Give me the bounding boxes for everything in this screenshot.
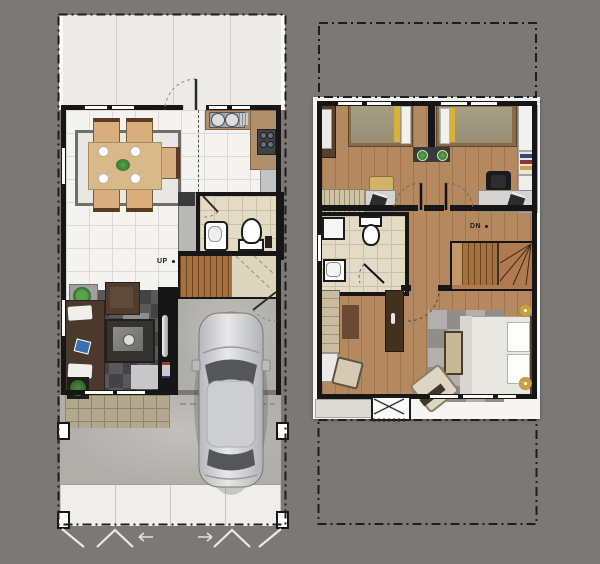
ac-ledge xyxy=(315,399,373,418)
bed-bench xyxy=(444,331,463,375)
up-label: UP xyxy=(157,258,168,265)
sink-basin xyxy=(211,113,225,127)
window xyxy=(471,102,497,105)
remote xyxy=(391,313,395,324)
table-plate xyxy=(98,146,109,157)
bath-fitting xyxy=(265,236,272,248)
table-centerpiece-plant xyxy=(116,159,130,171)
terrace-edge-right xyxy=(281,15,285,110)
gate-swing-marks xyxy=(62,529,281,547)
master-wall-stub xyxy=(438,285,450,291)
bedroom-divider-wall xyxy=(428,101,435,147)
understair-storage xyxy=(232,254,278,299)
bedside-lamp xyxy=(519,377,532,390)
dining-chair xyxy=(93,118,120,145)
table-bowl xyxy=(123,334,135,346)
bed-pillow xyxy=(440,108,450,144)
window xyxy=(117,391,145,394)
window xyxy=(463,395,493,398)
shower xyxy=(322,217,345,240)
basin-bowl xyxy=(326,262,341,277)
window xyxy=(62,148,65,184)
window xyxy=(232,106,250,109)
terrace-edge-left xyxy=(59,15,63,110)
gate-post xyxy=(276,422,289,440)
nightstand-plant xyxy=(437,150,448,161)
tv-screen xyxy=(162,315,168,357)
stair-landing xyxy=(452,243,462,285)
table-plate xyxy=(130,146,141,157)
window xyxy=(430,395,458,398)
ground-floor-panel: UP xyxy=(57,13,287,553)
desk-chair-seat xyxy=(491,175,506,188)
toilet-bowl xyxy=(362,224,380,246)
stove-burner xyxy=(267,141,274,148)
hall-wall xyxy=(450,205,532,211)
bed-pillow xyxy=(507,322,530,352)
stove-burner xyxy=(267,132,274,139)
nightstand-plant xyxy=(417,150,428,161)
table-plate xyxy=(130,173,141,184)
house-wall-right xyxy=(276,105,281,395)
terrace xyxy=(59,15,285,110)
up-label-dot xyxy=(172,260,175,263)
gate-direction-arrows xyxy=(139,533,212,541)
dn-label: DN xyxy=(470,223,481,230)
floor-plan-sheet: { "labels": { "ground_stairs": "UP", "up… xyxy=(0,0,600,564)
gate-post xyxy=(57,422,70,440)
window xyxy=(367,102,391,105)
walkway-tiles xyxy=(65,395,170,428)
vanity-bowl xyxy=(208,226,222,242)
av-equipment xyxy=(162,362,170,378)
window xyxy=(62,300,65,336)
toilet-bowl xyxy=(241,218,262,244)
window xyxy=(441,102,467,105)
bed-throw xyxy=(394,106,400,142)
window xyxy=(338,102,362,105)
stove-burner xyxy=(260,141,267,148)
window xyxy=(209,106,227,109)
floor-mat xyxy=(342,305,359,339)
stairs-up xyxy=(178,254,236,299)
sidewalk-tiles xyxy=(60,484,281,526)
window xyxy=(318,235,321,261)
lower-floor-outline xyxy=(319,420,537,524)
stair-treads xyxy=(462,243,498,285)
refrigerator-top xyxy=(178,192,195,206)
dining-chair xyxy=(126,118,153,145)
window xyxy=(498,395,516,398)
bed-throw xyxy=(450,108,455,142)
entry-opening xyxy=(183,105,206,110)
gate-post xyxy=(276,511,289,529)
upper-wall-right xyxy=(532,101,537,399)
sink-drainboard xyxy=(239,113,248,125)
bedside-lamp xyxy=(519,304,532,317)
roof-outline xyxy=(319,23,536,97)
dn-label-dot xyxy=(485,225,488,228)
ac-unit xyxy=(371,396,411,421)
hall-wall xyxy=(424,205,444,211)
window xyxy=(85,106,107,109)
upper-floor-panel: DN xyxy=(313,13,540,553)
armchair-cushion xyxy=(110,287,133,308)
table-plate xyxy=(98,173,109,184)
carport-floor xyxy=(178,295,276,390)
sink-basin xyxy=(225,113,239,127)
upper-cabinet-line xyxy=(198,110,199,192)
wardrobe-door xyxy=(321,109,332,149)
window xyxy=(112,106,134,109)
bed-pillow xyxy=(401,106,411,144)
stove-burner xyxy=(260,132,267,139)
stair-newel-line xyxy=(497,243,499,285)
master-wardrobe xyxy=(319,290,340,354)
rug-patch xyxy=(131,365,161,389)
sofa-pillow xyxy=(68,305,93,321)
window xyxy=(85,391,113,394)
gate-post xyxy=(57,511,70,529)
hall-wall xyxy=(322,205,418,211)
